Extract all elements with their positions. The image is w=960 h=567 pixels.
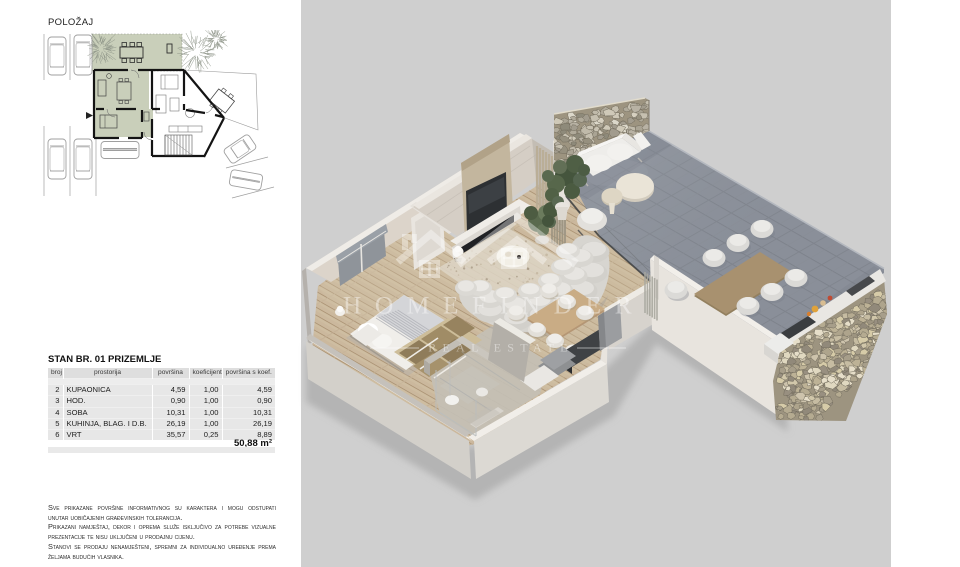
svg-text:HOMEFINDER: HOMEFINDER xyxy=(343,291,645,320)
svg-text:REAL ESTATE: REAL ESTATE xyxy=(428,341,574,355)
